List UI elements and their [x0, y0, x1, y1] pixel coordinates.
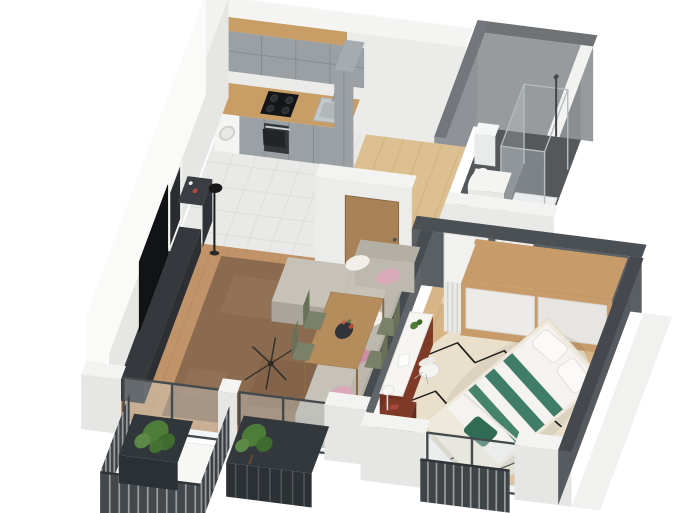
- vanity-top: [468, 168, 512, 193]
- apartment: [16, 0, 700, 513]
- apartment-isometric-svg: [0, 0, 700, 513]
- floor-plan-render: [0, 0, 700, 513]
